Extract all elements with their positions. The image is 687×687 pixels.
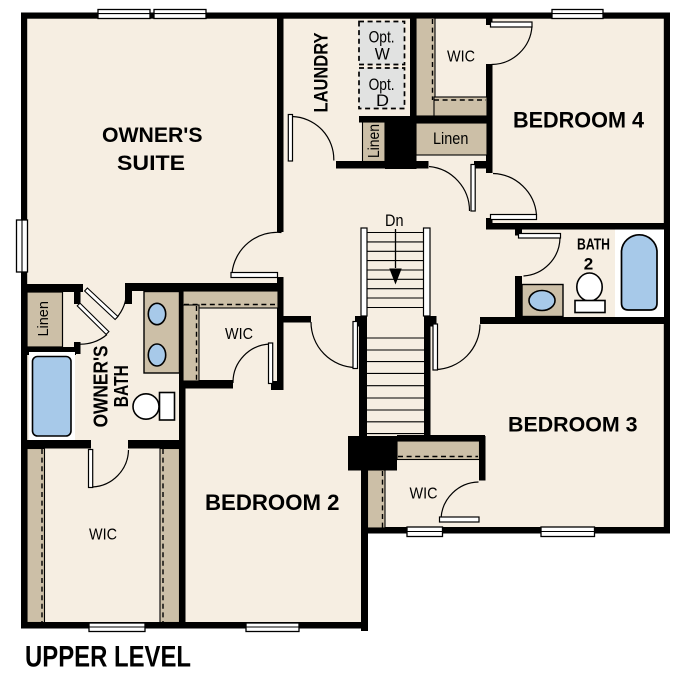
svg-text:2: 2	[584, 255, 593, 274]
svg-text:SUITE: SUITE	[117, 152, 185, 175]
svg-text:D: D	[376, 91, 389, 110]
svg-text:WIC: WIC	[89, 527, 117, 544]
svg-text:Linen: Linen	[366, 124, 383, 158]
svg-text:WIC: WIC	[225, 326, 253, 343]
svg-text:BATH: BATH	[110, 365, 133, 407]
svg-text:Linen: Linen	[36, 301, 52, 337]
svg-text:OWNER'S: OWNER'S	[102, 124, 203, 147]
svg-text:BEDROOM 4: BEDROOM 4	[513, 108, 644, 133]
svg-text:W: W	[375, 45, 390, 64]
svg-text:WIC: WIC	[447, 49, 475, 66]
svg-text:WIC: WIC	[410, 485, 438, 502]
svg-text:Linen: Linen	[433, 129, 468, 148]
svg-text:BEDROOM 2: BEDROOM 2	[205, 490, 340, 515]
svg-text:BEDROOM 3: BEDROOM 3	[508, 413, 638, 437]
svg-text:UPPER LEVEL: UPPER LEVEL	[25, 641, 191, 674]
svg-text:LAUNDRY: LAUNDRY	[311, 33, 333, 113]
svg-text:Dn: Dn	[385, 212, 404, 230]
svg-text:BATH: BATH	[577, 237, 610, 254]
